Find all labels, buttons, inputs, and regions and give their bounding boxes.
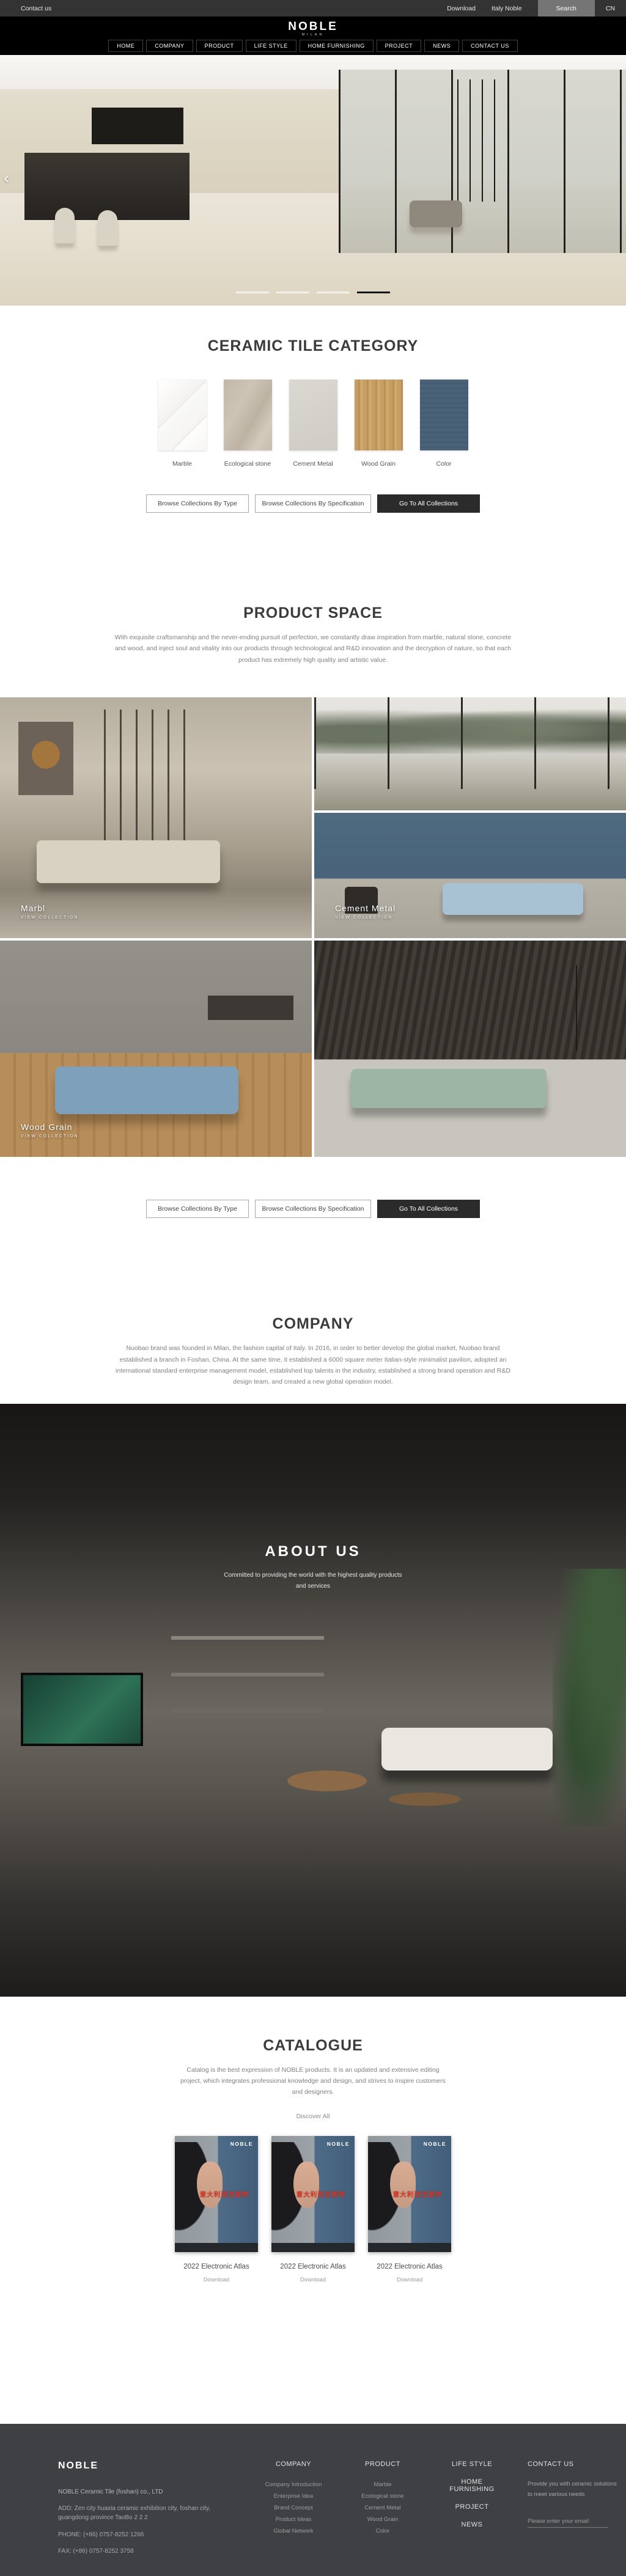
about-title: ABOUT US xyxy=(0,1543,626,1560)
nav-item-company[interactable]: COMPANY xyxy=(146,40,193,52)
space-card-marble-sublabel: VIEW COLLECTION xyxy=(21,916,79,920)
main-nav: HOME COMPANY PRODUCT LIFE STYLE HOME FUR… xyxy=(0,40,626,52)
footer-news-heading[interactable]: NEWS xyxy=(438,2521,506,2528)
cover-bottom-band xyxy=(368,2243,451,2252)
catalogue-title: CATALOGUE xyxy=(0,2037,626,2055)
cover-brand-logo: NOBLE xyxy=(424,2141,446,2147)
cover-brand-logo: NOBLE xyxy=(230,2141,253,2147)
site-header: NOBLE MILAN HOME COMPANY PRODUCT LIFE ST… xyxy=(0,17,626,55)
footer-product-heading[interactable]: PRODUCT xyxy=(349,2460,416,2468)
footer-columns: COMPANY Company Introduction Enterprise … xyxy=(260,2460,619,2576)
about-photo-shelves xyxy=(171,1636,324,1640)
hero-photo-pouf xyxy=(410,200,462,227)
about-photo-sofa xyxy=(381,1728,553,1771)
nav-item-product[interactable]: PRODUCT xyxy=(196,40,243,52)
carousel-prev-icon[interactable]: ‹ xyxy=(4,169,9,188)
nav-item-life-style[interactable]: LIFE STYLE xyxy=(246,40,296,52)
company-section: COMPANY Nuobao brand was founded in Mila… xyxy=(0,1276,626,1404)
footer-column-company: COMPANY Company Introduction Enterprise … xyxy=(260,2460,327,2576)
cover-bottom-band xyxy=(271,2243,355,2252)
tile-cement-metal-label: Cement Metal xyxy=(289,460,337,468)
catalogue-download-link[interactable]: Download xyxy=(368,2277,451,2283)
go-to-all-collections-button[interactable]: Go To All Collections xyxy=(377,494,480,513)
download-link[interactable]: Download xyxy=(447,5,476,12)
category-title: CERAMIC TILE CATEGORY xyxy=(0,337,626,355)
about-tagline-line1: Committed to providing the world with th… xyxy=(0,1570,626,1581)
catalogue-item-1[interactable]: NOBLE 意大利诺宝瓷砖 2022 Electronic Atlas Down… xyxy=(175,2136,258,2283)
footer-column-product: PRODUCT Marble Ecological stone Cement M… xyxy=(349,2460,416,2576)
cover-model-face xyxy=(293,2162,319,2208)
space-card-slat-lamp xyxy=(576,965,577,1051)
space-card-marble-sofa xyxy=(37,840,220,883)
footer-logo: NOBLE xyxy=(58,2460,260,2471)
space-card-cement-sublabel: VIEW COLLECTION xyxy=(335,916,396,920)
email-input[interactable] xyxy=(528,2515,608,2528)
footer-address: ADD: Zen city huaxia ceramic exhibition … xyxy=(58,2504,211,2523)
brand-logo-text: NOBLE xyxy=(0,21,626,33)
product-space-left-column: Marbl VIEW COLLECTION Wood Grain VIEW CO… xyxy=(0,697,312,1157)
cover-chinese-title: 意大利诺宝瓷砖 xyxy=(386,2190,449,2199)
space-card-marble-label: Marbl xyxy=(21,903,79,913)
tile-ecological-stone[interactable]: Ecological stone xyxy=(224,380,272,468)
about-photo-coffee-table xyxy=(287,1771,367,1791)
tile-color-label: Color xyxy=(420,460,468,468)
space-card-wood-console xyxy=(208,996,293,1020)
carousel-bullet[interactable] xyxy=(236,292,269,293)
company-title: COMPANY xyxy=(0,1315,626,1333)
space-card-wood-sofa xyxy=(55,1066,238,1114)
tile-wood-grain-label: Wood Grain xyxy=(355,460,403,468)
space-card-terrace[interactable] xyxy=(314,697,626,810)
footer-column-sections: LIFE STYLE HOME FURNISHING PROJECT NEWS xyxy=(438,2460,506,2576)
about-us-section[interactable]: ABOUT US Committed to providing the worl… xyxy=(0,1404,626,1997)
company-description: Nuobao brand was founded in Milan, the f… xyxy=(114,1343,512,1388)
nav-item-news[interactable]: NEWS xyxy=(424,40,459,52)
catalogue-bottom-spacer xyxy=(0,2283,626,2424)
carousel-bullet-active[interactable] xyxy=(357,292,390,293)
about-photo-tv xyxy=(21,1673,143,1746)
space-card-wood-sublabel: VIEW COLLECTION xyxy=(21,1134,79,1139)
footer-link-wood-grain[interactable]: Wood Grain xyxy=(349,2514,416,2525)
product-space-description: With exquisite craftsmanship and the nev… xyxy=(113,632,514,666)
contact-us-link[interactable]: Contact us xyxy=(21,5,51,12)
catalogue-covers: NOBLE 意大利诺宝瓷砖 2022 Electronic Atlas Down… xyxy=(0,2136,626,2283)
catalogue-cover-image: NOBLE 意大利诺宝瓷砖 xyxy=(271,2136,355,2252)
footer-fax: FAX: (+86) 0757-8252 3758 xyxy=(58,2547,211,2556)
discover-all-link[interactable]: Discover All xyxy=(0,2113,626,2120)
product-space-title: PRODUCT SPACE xyxy=(0,604,626,622)
cover-model-face xyxy=(197,2162,223,2208)
brand-logo[interactable]: NOBLE MILAN xyxy=(0,21,626,37)
about-photo-plant xyxy=(553,1569,626,1826)
hero-photo-stool xyxy=(55,208,75,243)
about-tagline-line2: and services xyxy=(0,1581,626,1592)
cover-chinese-title: 意大利诺宝瓷砖 xyxy=(290,2190,352,2199)
cover-bottom-band xyxy=(175,2243,258,2252)
carousel-bullet[interactable] xyxy=(317,292,350,293)
tile-marble-label: Marble xyxy=(158,460,207,468)
hero-photo-stool xyxy=(98,210,117,246)
footer-phone: PHONE: (+86) 0757-8252 1266 xyxy=(58,2530,211,2540)
footer-contact-text: Provide you with ceramic solutions to me… xyxy=(528,2479,619,2500)
carousel-bullet[interactable] xyxy=(276,292,309,293)
hero-carousel: ‹ xyxy=(0,55,626,306)
nav-item-project[interactable]: PROJECT xyxy=(377,40,422,52)
tile-wood-grain[interactable]: Wood Grain xyxy=(355,380,403,468)
footer-home-furnishing-heading[interactable]: HOME FURNISHING xyxy=(438,2478,506,2493)
space-card-marble-art xyxy=(18,722,73,795)
nav-item-contact-us[interactable]: CONTACT US xyxy=(462,40,518,52)
site-footer: NOBLE NOBLE Ceramic Tile (foshan) co., L… xyxy=(0,2424,626,2576)
footer-link-ecological-stone[interactable]: Ecological stone xyxy=(349,2490,416,2502)
space-card-wood-label: Wood Grain xyxy=(21,1122,79,1132)
footer-company-name: NOBLE Ceramic Tile (foshan) co., LTD xyxy=(58,2487,260,2497)
space-card-wood-caption: Wood Grain VIEW COLLECTION xyxy=(21,1122,79,1139)
topbar-right-group: Download Italy Noble Search CN xyxy=(447,0,626,17)
tile-color-swatch xyxy=(420,380,468,450)
space-card-marble-screen xyxy=(104,710,196,844)
cover-chinese-title: 意大利诺宝瓷砖 xyxy=(193,2190,256,2199)
footer-link-cement-metal[interactable]: Cement Metal xyxy=(349,2502,416,2514)
space-card-cement-label: Cement Metal xyxy=(335,903,396,913)
hero-photo-coat-rack xyxy=(457,79,496,202)
catalogue-item-name: 2022 Electronic Atlas xyxy=(175,2263,258,2270)
tile-ecological-stone-label: Ecological stone xyxy=(224,460,272,468)
catalogue-cover-image: NOBLE 意大利诺宝瓷砖 xyxy=(175,2136,258,2252)
category-section: CERAMIC TILE CATEGORY Marble Ecological … xyxy=(0,306,626,513)
footer-contact-heading[interactable]: CONTACT US xyxy=(528,2460,619,2468)
catalogue-item-3[interactable]: NOBLE 意大利诺宝瓷砖 2022 Electronic Atlas Down… xyxy=(368,2136,451,2283)
tile-wood-grain-swatch xyxy=(355,380,403,450)
tile-cement-metal-swatch xyxy=(289,380,337,450)
footer-life-style-heading[interactable]: LIFE STYLE xyxy=(438,2460,506,2468)
browse-by-type-button[interactable]: Browse Collections By Type xyxy=(146,1200,249,1218)
space-card-slat-sofa xyxy=(351,1069,547,1108)
language-toggle[interactable]: CN xyxy=(595,5,626,12)
space-card-cement-metal[interactable]: Cement Metal VIEW COLLECTION xyxy=(314,813,626,938)
footer-link-global-network[interactable]: Global Network xyxy=(260,2525,327,2537)
footer-link-enterprise-idea[interactable]: Enterprise Idea xyxy=(260,2490,327,2502)
footer-link-marble[interactable]: Marble xyxy=(349,2479,416,2490)
browse-by-specification-button[interactable]: Browse Collections By Specification xyxy=(255,494,371,513)
space-card-wood-grain[interactable]: Wood Grain VIEW COLLECTION xyxy=(0,941,312,1157)
space-card-slat-wall[interactable] xyxy=(314,941,626,1157)
product-space-grid: Marbl VIEW COLLECTION Wood Grain VIEW CO… xyxy=(0,697,626,1157)
footer-link-brand-concept[interactable]: Brand Concept xyxy=(260,2502,327,2514)
space-card-cement-sofa xyxy=(443,883,583,915)
catalogue-cover-image: NOBLE 意大利诺宝瓷砖 xyxy=(368,2136,451,2252)
tile-ecological-stone-swatch xyxy=(224,380,272,450)
carousel-pagination xyxy=(0,292,626,293)
footer-brand-block: NOBLE NOBLE Ceramic Tile (foshan) co., L… xyxy=(58,2460,260,2576)
cover-brand-logo: NOBLE xyxy=(327,2141,350,2147)
catalogue-item-name: 2022 Electronic Atlas xyxy=(271,2263,355,2270)
footer-link-product-ideas[interactable]: Product Ideas xyxy=(260,2514,327,2525)
catalogue-section: CATALOGUE Catalog is the best expression… xyxy=(0,1997,626,2424)
space-card-cement-caption: Cement Metal VIEW COLLECTION xyxy=(335,903,396,920)
brand-logo-subtext: MILAN xyxy=(0,33,626,37)
catalogue-download-link[interactable]: Download xyxy=(175,2277,258,2283)
italy-noble-link[interactable]: Italy Noble xyxy=(492,5,522,12)
go-to-all-collections-button[interactable]: Go To All Collections xyxy=(377,1200,480,1218)
tile-cement-metal[interactable]: Cement Metal xyxy=(289,380,337,468)
tile-marble[interactable]: Marble xyxy=(158,380,207,468)
nav-item-home[interactable]: HOME xyxy=(108,40,143,52)
footer-link-color[interactable]: Color xyxy=(349,2525,416,2537)
browse-by-type-button[interactable]: Browse Collections By Type xyxy=(146,494,249,513)
about-text-overlay: ABOUT US Committed to providing the worl… xyxy=(0,1543,626,1592)
space-card-terrace-frames xyxy=(314,697,626,789)
about-tagline: Committed to providing the world with th… xyxy=(0,1570,626,1592)
footer-column-contact: CONTACT US Provide you with ceramic solu… xyxy=(528,2460,619,2576)
browse-by-specification-button[interactable]: Browse Collections By Specification xyxy=(255,1200,371,1218)
product-space-section: PRODUCT SPACE With exquisite craftsmansh… xyxy=(0,513,626,1276)
footer-link-company-introduction[interactable]: Company Introduction xyxy=(260,2479,327,2490)
catalogue-item-name: 2022 Electronic Atlas xyxy=(368,2263,451,2270)
catalogue-item-2[interactable]: NOBLE 意大利诺宝瓷砖 2022 Electronic Atlas Down… xyxy=(271,2136,355,2283)
category-tiles: Marble Ecological stone Cement Metal Woo… xyxy=(0,380,626,468)
catalogue-download-link[interactable]: Download xyxy=(271,2277,355,2283)
product-space-right-column: Cement Metal VIEW COLLECTION xyxy=(314,697,626,1157)
nav-item-home-furnishing[interactable]: HOME FURNISHING xyxy=(300,40,374,52)
cover-model-face xyxy=(390,2162,416,2208)
tile-color[interactable]: Color xyxy=(420,380,468,468)
search-button[interactable]: Search xyxy=(538,0,595,17)
catalogue-description: Catalog is the best expression of NOBLE … xyxy=(179,2064,447,2098)
tile-marble-swatch xyxy=(158,380,207,450)
collection-buttons-bottom: Browse Collections By Type Browse Collec… xyxy=(0,1200,626,1276)
hero-photo-fireplace xyxy=(92,108,183,144)
top-utility-bar: Contact us Download Italy Noble Search C… xyxy=(0,0,626,17)
collection-buttons-top: Browse Collections By Type Browse Collec… xyxy=(0,494,626,513)
footer-project-heading[interactable]: PROJECT xyxy=(438,2503,506,2511)
space-card-marble[interactable]: Marbl VIEW COLLECTION xyxy=(0,697,312,938)
space-card-marble-caption: Marbl VIEW COLLECTION xyxy=(21,903,79,920)
footer-company-heading[interactable]: COMPANY xyxy=(260,2460,327,2468)
